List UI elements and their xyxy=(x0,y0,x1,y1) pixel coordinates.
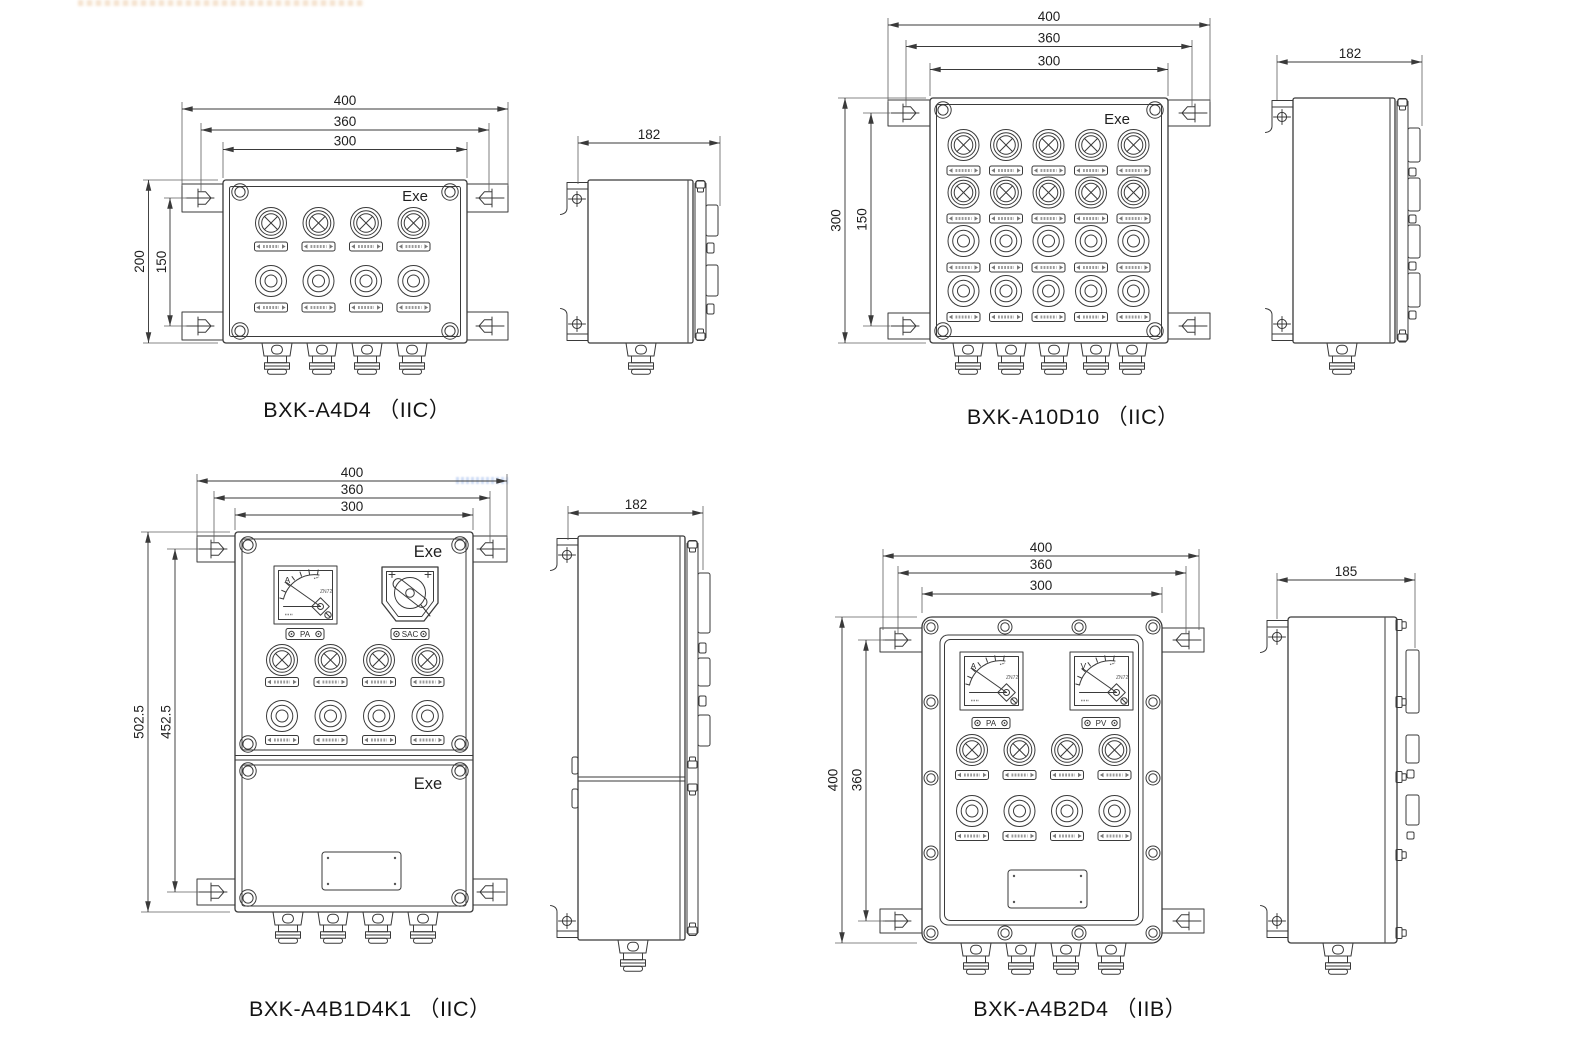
ammeter xyxy=(274,566,337,624)
push-button xyxy=(948,226,979,257)
voltmeter-unit: V xyxy=(1081,661,1087,671)
hinge-tab xyxy=(698,573,710,633)
hinge-tab xyxy=(699,696,706,706)
indicator-lamp xyxy=(1076,130,1107,161)
flange-bolt xyxy=(1146,620,1160,634)
ex-marking-lower: Exe xyxy=(414,775,442,793)
cover-bolt xyxy=(1398,330,1407,341)
side-mounting-bracket xyxy=(561,183,589,215)
dimension-width-360: 360 xyxy=(898,557,1186,633)
cable-gland xyxy=(1006,943,1036,974)
label-plate xyxy=(411,678,444,687)
hinge-tab xyxy=(1406,735,1419,763)
svg-text:300: 300 xyxy=(1038,54,1061,69)
cover-plate xyxy=(695,181,706,341)
enclosure-side xyxy=(588,180,693,343)
dimension-height-150: 150 xyxy=(154,198,187,326)
cover-plate xyxy=(687,541,698,936)
cable-gland xyxy=(953,343,983,374)
side-view: 182 xyxy=(561,127,721,374)
enclosure-body xyxy=(235,532,473,912)
push-button xyxy=(1118,276,1149,307)
flange-bolt xyxy=(924,926,938,940)
push-button xyxy=(1118,226,1149,257)
hinge-tab xyxy=(706,265,718,296)
svg-text:360: 360 xyxy=(1038,31,1061,46)
cable-gland xyxy=(397,343,427,374)
label-plate xyxy=(1032,214,1065,223)
flange-bolt xyxy=(924,846,938,860)
model-bxk-a4d4: Exe xyxy=(132,93,720,422)
hinge-tab xyxy=(1408,128,1420,162)
label-plate xyxy=(314,678,347,687)
label-plate xyxy=(990,166,1023,175)
cover-plate xyxy=(1397,99,1408,343)
svg-text:150: 150 xyxy=(154,251,169,274)
label-plate xyxy=(947,166,980,175)
hinge-tab xyxy=(1406,795,1419,825)
cable-gland xyxy=(961,943,991,974)
flange-bolt xyxy=(924,771,938,785)
label-plate xyxy=(397,242,430,251)
indicator-lamp xyxy=(303,208,334,239)
label-plate xyxy=(956,771,989,780)
side-lug-tab xyxy=(572,789,578,808)
label-plate xyxy=(1075,214,1108,223)
hinge-tab xyxy=(698,658,710,686)
indicator-lamp xyxy=(1076,177,1107,208)
svg-text:182: 182 xyxy=(625,497,648,512)
engineering-drawing: Exe xyxy=(0,0,1593,1050)
lug-bolt-icon xyxy=(186,317,214,335)
push-button xyxy=(991,276,1022,307)
enclosure-side xyxy=(578,536,685,940)
selector-switch xyxy=(382,567,438,621)
hinge-tab xyxy=(1409,311,1416,319)
push-button xyxy=(412,701,443,732)
label-plate xyxy=(1003,771,1036,780)
indicator-lamp xyxy=(948,177,979,208)
cover-bolt xyxy=(1398,99,1407,110)
indicator-lamp xyxy=(1118,130,1149,161)
cable-gland xyxy=(1323,943,1353,974)
lug-bolt-icon xyxy=(1173,631,1201,649)
svg-text:182: 182 xyxy=(638,127,661,142)
cable-gland xyxy=(318,912,348,943)
side-view: 185 xyxy=(1261,564,1420,974)
label-plate xyxy=(1051,771,1084,780)
cable-gland xyxy=(996,343,1026,374)
dimension-depth-182: 182 xyxy=(578,127,720,206)
lug-bolt-icon xyxy=(186,189,214,207)
hinge-tab xyxy=(1407,770,1414,778)
voltmeter xyxy=(1070,652,1133,710)
indicator-lamp xyxy=(991,177,1022,208)
dimension-height-400: 400 xyxy=(826,617,918,943)
label-plate xyxy=(1032,166,1065,175)
label-plate xyxy=(350,303,383,312)
label-plate xyxy=(1075,166,1108,175)
label-plate xyxy=(1098,771,1131,780)
cable-gland xyxy=(307,343,337,374)
model-caption: BXK-A4D4 （IIC） xyxy=(263,398,450,422)
label-plate xyxy=(947,214,980,223)
indicator-lamp xyxy=(948,130,979,161)
svg-text:360: 360 xyxy=(341,482,364,497)
svg-text:400: 400 xyxy=(341,465,364,480)
dimension-width-300: 300 xyxy=(235,499,473,530)
push-button xyxy=(948,276,979,307)
lug-bolt-icon xyxy=(476,317,504,335)
svg-text:300: 300 xyxy=(334,134,357,149)
dimension-depth-185: 185 xyxy=(1277,564,1415,648)
push-button xyxy=(398,266,429,297)
indicator-lamp xyxy=(364,645,395,676)
lug-bolt-icon xyxy=(883,631,911,649)
indicator-lamp xyxy=(398,208,429,239)
cable-gland xyxy=(618,940,648,971)
label-plate xyxy=(411,736,444,745)
svg-text:360: 360 xyxy=(334,114,357,129)
cable-gland xyxy=(1039,343,1069,374)
cable-gland xyxy=(352,343,382,374)
cable-gland xyxy=(262,343,292,374)
svg-text:185: 185 xyxy=(1335,564,1358,579)
ammeter-unit: A xyxy=(285,575,291,585)
side-mounting-bracket xyxy=(1266,101,1294,133)
label-plate xyxy=(947,263,980,272)
label-plate xyxy=(397,303,430,312)
cable-gland xyxy=(1081,343,1111,374)
hinge-tab xyxy=(698,715,710,746)
model-caption: BXK-A4B1D4K1 （IIC） xyxy=(249,997,491,1021)
hinge-tab xyxy=(1408,225,1420,258)
voltmeter-model: ZN72 xyxy=(1116,675,1128,681)
label-plate xyxy=(1003,832,1036,841)
flange-bolt xyxy=(998,620,1012,634)
label-plate xyxy=(255,303,288,312)
label-plate xyxy=(1075,263,1108,272)
lug-bolt-icon xyxy=(477,883,505,901)
ammeter-unit: A xyxy=(971,661,977,671)
dimension-depth-182: 182 xyxy=(568,497,703,570)
push-button xyxy=(315,701,346,732)
svg-text:502.5: 502.5 xyxy=(132,705,147,739)
cable-gland xyxy=(1051,943,1081,974)
hinge-tab xyxy=(706,205,718,236)
label-plate xyxy=(363,736,396,745)
flange-bolt xyxy=(1146,926,1160,940)
label-plate xyxy=(363,678,396,687)
label-plate xyxy=(1075,313,1108,322)
side-view: 182 xyxy=(1266,46,1423,374)
side-mounting-bracket xyxy=(1261,906,1289,938)
flange-bolt xyxy=(1146,846,1160,860)
push-button xyxy=(1004,796,1035,827)
push-button xyxy=(364,701,395,732)
label-plate xyxy=(1032,263,1065,272)
push-button xyxy=(1052,796,1083,827)
ammeter xyxy=(960,652,1023,710)
nameplate xyxy=(322,852,401,890)
label-plate xyxy=(947,313,980,322)
cover-bolt xyxy=(696,181,705,192)
cover-bolt xyxy=(696,329,705,340)
model-bxk-a10d10: Exe xyxy=(829,9,1423,429)
label-plate xyxy=(990,313,1023,322)
hinge-tab xyxy=(1409,215,1416,223)
svg-text:400: 400 xyxy=(826,769,841,792)
push-button xyxy=(1076,276,1107,307)
lug-bolt-icon xyxy=(1179,104,1207,122)
lug-bolt-icon xyxy=(1179,317,1207,335)
lug-bolt-icon xyxy=(477,540,505,558)
dimension-width-300: 300 xyxy=(922,578,1162,613)
label-plate xyxy=(1117,214,1150,223)
label-plate xyxy=(350,242,383,251)
flange-bolt xyxy=(924,695,938,709)
indicator-lamp xyxy=(256,208,287,239)
push-button xyxy=(991,226,1022,257)
indicator-lamp xyxy=(1004,735,1035,766)
svg-text:360: 360 xyxy=(850,769,865,792)
cable-gland xyxy=(626,343,656,374)
indicator-lamp xyxy=(991,130,1022,161)
flange-bolt xyxy=(998,926,1012,940)
enclosure-side xyxy=(1293,98,1395,343)
dimension-height-150: 150 xyxy=(855,113,891,326)
nameplate xyxy=(1008,870,1087,908)
side-mounting-bracket xyxy=(551,906,579,938)
hinge-tab xyxy=(1407,832,1414,839)
indicator-lamp xyxy=(267,645,298,676)
label-plate xyxy=(266,736,299,745)
dimension-width-300: 300 xyxy=(930,54,1168,97)
label-plate xyxy=(266,678,299,687)
dimension-depth-182: 182 xyxy=(1277,46,1422,126)
side-mounting-bracket xyxy=(551,539,579,571)
ammeter-tag: PA xyxy=(300,630,311,639)
cable-gland xyxy=(1117,343,1147,374)
switch-tag: SAC xyxy=(402,630,419,639)
hinge-tab xyxy=(707,304,714,314)
cable-gland xyxy=(273,912,303,943)
hinge-tab xyxy=(707,243,714,253)
svg-text:300: 300 xyxy=(829,209,844,232)
flange-bolt xyxy=(1146,771,1160,785)
model-bxk-a4b1d4k1: Exe Exe A ZN72 PA SAC xyxy=(132,465,711,1021)
dimension-height-300: 300 xyxy=(829,98,927,343)
push-button xyxy=(957,796,988,827)
cover-bolt xyxy=(688,784,697,795)
indicator-lamp xyxy=(351,208,382,239)
drawing-sheet: Exe xyxy=(0,0,1593,1050)
front-view: Exe xyxy=(888,98,1210,374)
ex-marking-upper: Exe xyxy=(414,543,442,561)
label-plate xyxy=(302,242,335,251)
enclosure-side xyxy=(1288,617,1397,943)
model-caption: BXK-A10D10 （IIC） xyxy=(967,405,1179,429)
push-button xyxy=(1076,226,1107,257)
dimension-height-502-5: 502.5 xyxy=(132,532,231,912)
side-mounting-bracket xyxy=(561,309,589,341)
hinge-tab xyxy=(699,643,706,653)
side-lug-tab xyxy=(572,757,578,774)
cable-gland xyxy=(1327,343,1357,374)
side-view: 182 xyxy=(551,497,711,971)
svg-text:400: 400 xyxy=(1038,9,1061,24)
svg-text:200: 200 xyxy=(132,250,147,273)
lug-bolt-icon xyxy=(891,317,919,335)
indicator-lamp xyxy=(1052,735,1083,766)
svg-text:150: 150 xyxy=(855,208,870,231)
cable-gland xyxy=(408,912,438,943)
cover-bolt xyxy=(688,541,697,552)
side-mounting-bracket xyxy=(1261,621,1289,653)
indicator-lamp xyxy=(1099,735,1130,766)
svg-text:360: 360 xyxy=(1030,557,1053,572)
svg-text:400: 400 xyxy=(334,93,357,108)
side-mounting-bracket xyxy=(1266,309,1294,341)
ex-marking: Exe xyxy=(1104,111,1130,128)
front-view: A ZN72 V ZN72 PA PV xyxy=(880,617,1204,974)
model-caption: BXK-A4B2D4 （IIB） xyxy=(973,997,1187,1021)
flange-bolt xyxy=(1072,926,1086,940)
upper-door-border xyxy=(242,539,466,750)
label-plate xyxy=(1117,313,1150,322)
front-view: Exe xyxy=(182,180,508,374)
hinge-tab xyxy=(1409,168,1416,176)
lug-bolt-icon xyxy=(476,189,504,207)
svg-text:300: 300 xyxy=(1030,578,1053,593)
dimension-width-300: 300 xyxy=(223,134,467,179)
label-plate xyxy=(314,736,347,745)
dimension-height-452-5: 452.5 xyxy=(159,549,200,892)
push-button xyxy=(1033,226,1064,257)
label-plate xyxy=(1117,263,1150,272)
label-plate xyxy=(1117,166,1150,175)
push-button xyxy=(256,266,287,297)
lug-bolt-icon xyxy=(883,912,911,930)
push-button xyxy=(1033,276,1064,307)
flange-bolt xyxy=(1072,620,1086,634)
svg-text:300: 300 xyxy=(341,499,364,514)
label-plate xyxy=(1032,313,1065,322)
indicator-lamp xyxy=(957,735,988,766)
enclosure-body xyxy=(223,180,467,343)
hinge-tab xyxy=(1406,650,1419,713)
push-button xyxy=(303,266,334,297)
label-plate xyxy=(255,242,288,251)
flange-bolt xyxy=(924,620,938,634)
hinge-tab xyxy=(1409,262,1416,270)
voltmeter-tag: PV xyxy=(1096,719,1107,728)
cover-bolt xyxy=(688,923,697,934)
cable-gland xyxy=(1096,943,1126,974)
flange-bolt xyxy=(1146,695,1160,709)
lug-bolt-icon xyxy=(1173,912,1201,930)
indicator-lamp xyxy=(1033,177,1064,208)
label-plate xyxy=(302,303,335,312)
lug-bolt-icon xyxy=(199,540,227,558)
lug-bolt-icon xyxy=(891,104,919,122)
cable-gland xyxy=(363,912,393,943)
svg-text:182: 182 xyxy=(1339,46,1362,61)
dimension-height-360: 360 xyxy=(850,640,886,921)
push-button xyxy=(267,701,298,732)
ex-marking: Exe xyxy=(402,188,428,205)
label-plate xyxy=(1051,832,1084,841)
lug-bolt-icon xyxy=(199,883,227,901)
label-plate xyxy=(956,832,989,841)
push-button xyxy=(1099,796,1130,827)
indicator-lamp xyxy=(315,645,346,676)
indicator-lamp xyxy=(412,645,443,676)
label-plate xyxy=(1098,832,1131,841)
push-button xyxy=(351,266,382,297)
indicator-lamp xyxy=(1118,177,1149,208)
ammeter-model: ZN72 xyxy=(320,589,332,595)
model-bxk-a4b2d4: A ZN72 V ZN72 PA PV xyxy=(826,540,1420,1021)
ammeter-model: ZN72 xyxy=(1006,675,1018,681)
hinge-tab xyxy=(1408,273,1420,307)
svg-text:452.5: 452.5 xyxy=(159,705,174,739)
cover-bolt xyxy=(688,757,697,768)
front-view: Exe Exe A ZN72 PA SAC xyxy=(197,532,507,943)
svg-text:400: 400 xyxy=(1030,540,1053,555)
label-plate xyxy=(990,263,1023,272)
label-plate xyxy=(990,214,1023,223)
ammeter-tag: PA xyxy=(986,719,997,728)
hinge-tab xyxy=(1408,178,1420,211)
indicator-lamp xyxy=(1033,130,1064,161)
